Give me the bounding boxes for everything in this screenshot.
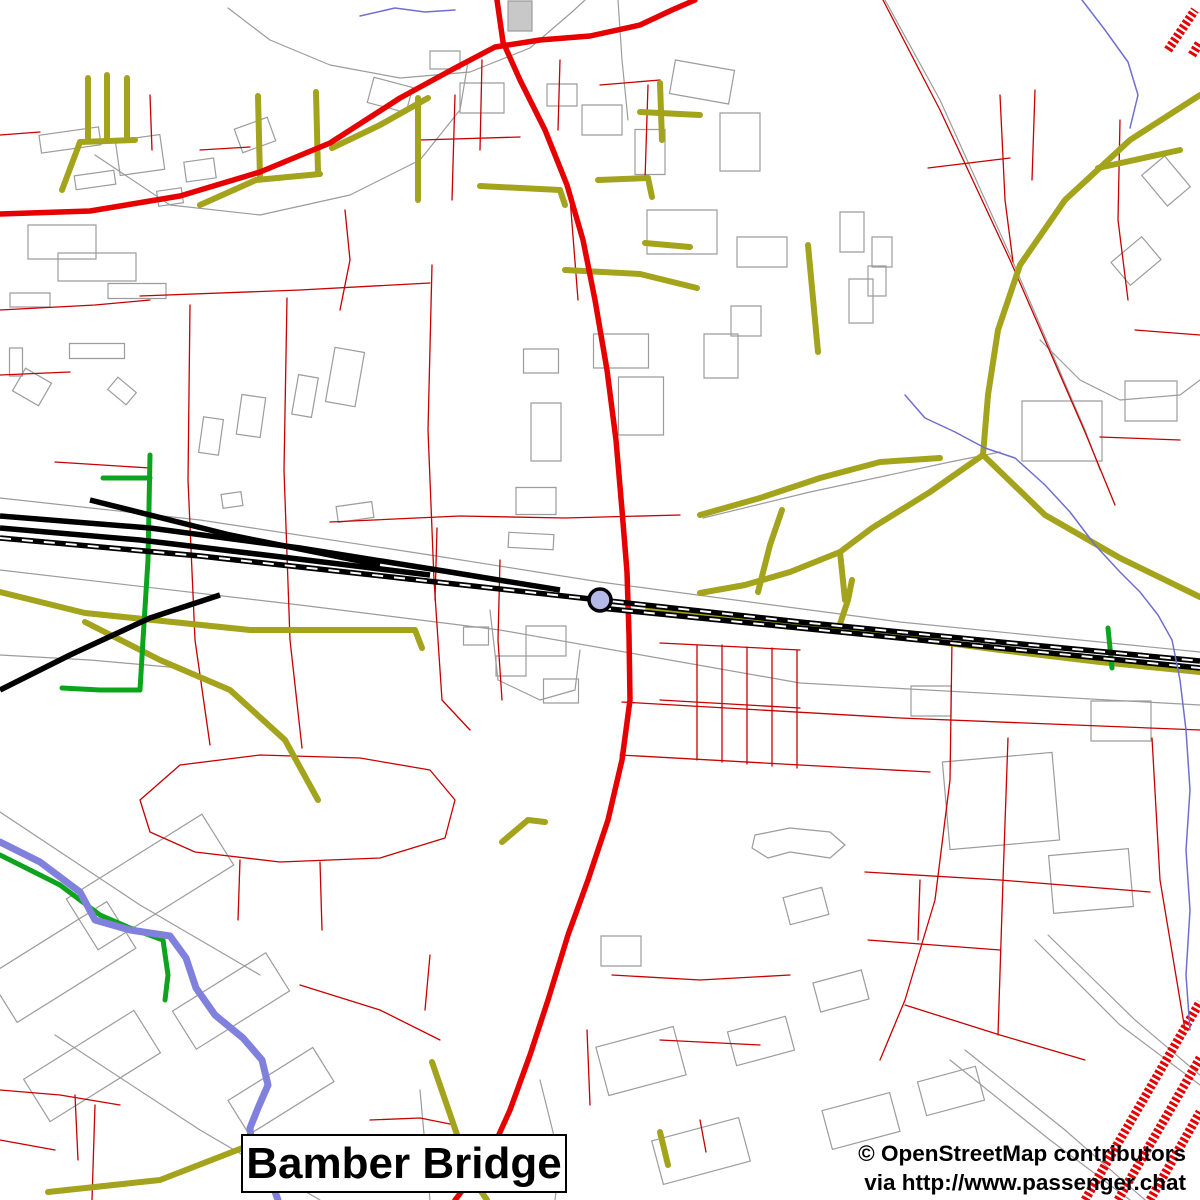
attribution: © OpenStreetMap contributors via http://… (858, 1139, 1186, 1197)
map-viewport[interactable]: Bamber Bridge © OpenStreetMap contributo… (0, 0, 1200, 1200)
secondary-green-roads (0, 455, 1112, 1000)
map-title: Bamber Bridge (246, 1139, 561, 1189)
station-marker[interactable] (589, 589, 611, 611)
motorway-hatched (1085, 10, 1200, 1200)
streams (360, 0, 1190, 1030)
tertiary-olive-roads (0, 75, 1200, 1200)
attribution-line-2: via http://www.passenger.chat (858, 1168, 1186, 1197)
map-title-box: Bamber Bridge (241, 1134, 567, 1193)
attribution-line-1: © OpenStreetMap contributors (858, 1139, 1186, 1168)
map-canvas[interactable] (0, 0, 1200, 1200)
river (0, 842, 278, 1200)
